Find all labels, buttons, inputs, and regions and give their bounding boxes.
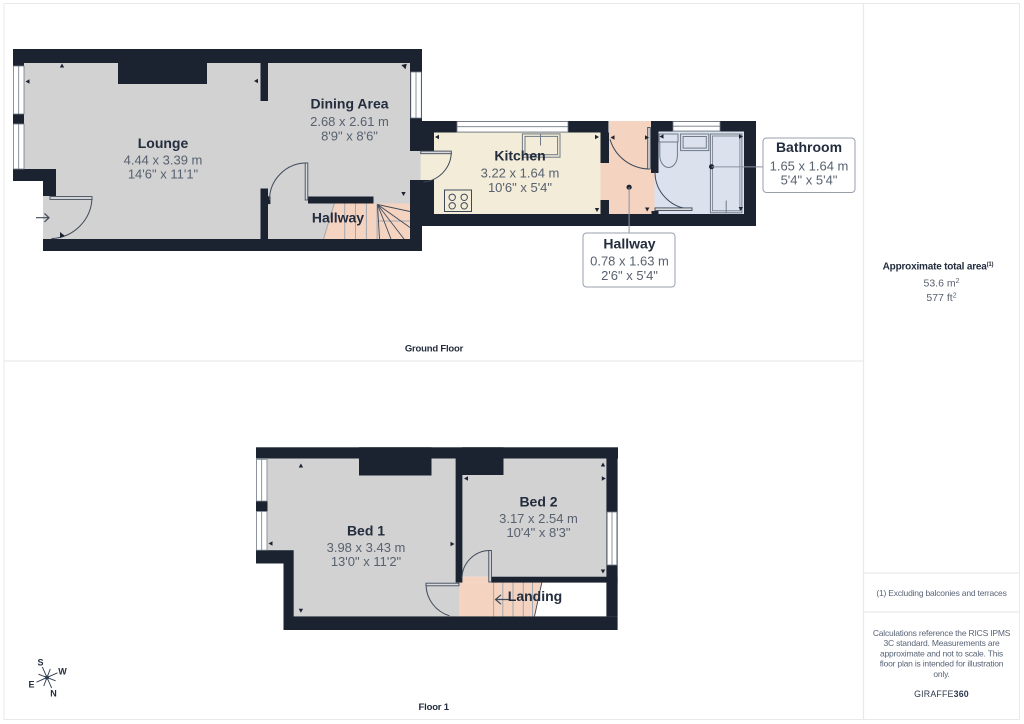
svg-text:3.98 x 3.43 m: 3.98 x 3.43 m (327, 540, 406, 555)
svg-text:10'6" x 5'4": 10'6" x 5'4" (488, 180, 552, 195)
svg-text:13'0" x 11'2": 13'0" x 11'2" (331, 554, 402, 569)
svg-text:only.: only. (933, 669, 949, 679)
svg-text:4.44 x 3.39 m: 4.44 x 3.39 m (124, 153, 203, 168)
svg-text:53.6 m2: 53.6 m2 (923, 277, 959, 289)
svg-text:(1) Excluding balconies and te: (1) Excluding balconies and terraces (876, 588, 1006, 598)
svg-text:Lounge: Lounge (138, 135, 189, 151)
svg-text:14'6" x 11'1": 14'6" x 11'1" (128, 167, 199, 182)
svg-text:3.22 x 1.64 m: 3.22 x 1.64 m (481, 166, 560, 181)
svg-text:Hallway: Hallway (603, 236, 655, 252)
svg-text:Bed 2: Bed 2 (519, 494, 557, 510)
svg-text:GIRAFFE360: GIRAFFE360 (914, 689, 969, 699)
svg-text:2.68 x 2.61 m: 2.68 x 2.61 m (310, 114, 389, 129)
svg-text:0.78 x 1.63 m: 0.78 x 1.63 m (590, 254, 669, 269)
svg-text:Floor 1: Floor 1 (419, 702, 450, 713)
svg-text:577 ft2: 577 ft2 (926, 292, 956, 304)
svg-text:3C standard. Measurements are: 3C standard. Measurements are (883, 638, 1000, 648)
svg-text:N: N (50, 689, 57, 699)
svg-text:E: E (28, 680, 34, 690)
svg-text:W: W (58, 667, 67, 677)
svg-text:10'4" x 8'3": 10'4" x 8'3" (506, 525, 570, 540)
svg-text:2'6" x 5'4": 2'6" x 5'4" (601, 268, 658, 283)
svg-text:8'9" x 8'6": 8'9" x 8'6" (321, 129, 378, 144)
svg-text:Approximate total area(1): Approximate total area(1) (883, 261, 994, 272)
svg-text:floor plan is intended for ill: floor plan is intended for illustration (880, 659, 1004, 669)
svg-text:Hallway: Hallway (312, 210, 364, 226)
svg-text:Ground Floor: Ground Floor (405, 343, 464, 354)
svg-text:3.17 x 2.54 m: 3.17 x 2.54 m (499, 511, 578, 526)
svg-text:S: S (37, 658, 43, 668)
svg-text:Dining Area: Dining Area (310, 96, 388, 112)
svg-text:Landing: Landing (508, 588, 562, 604)
svg-text:Bed 1: Bed 1 (347, 523, 385, 539)
svg-text:approximate and not to scale.: approximate and not to scale. This (880, 648, 1003, 658)
svg-text:Calculations reference the RIC: Calculations reference the RICS IPMS (873, 628, 1011, 638)
svg-text:Kitchen: Kitchen (494, 148, 545, 164)
svg-text:Bathroom: Bathroom (776, 139, 842, 155)
svg-text:1.65 x 1.64 m: 1.65 x 1.64 m (770, 159, 849, 174)
svg-text:5'4" x 5'4": 5'4" x 5'4" (781, 173, 838, 188)
